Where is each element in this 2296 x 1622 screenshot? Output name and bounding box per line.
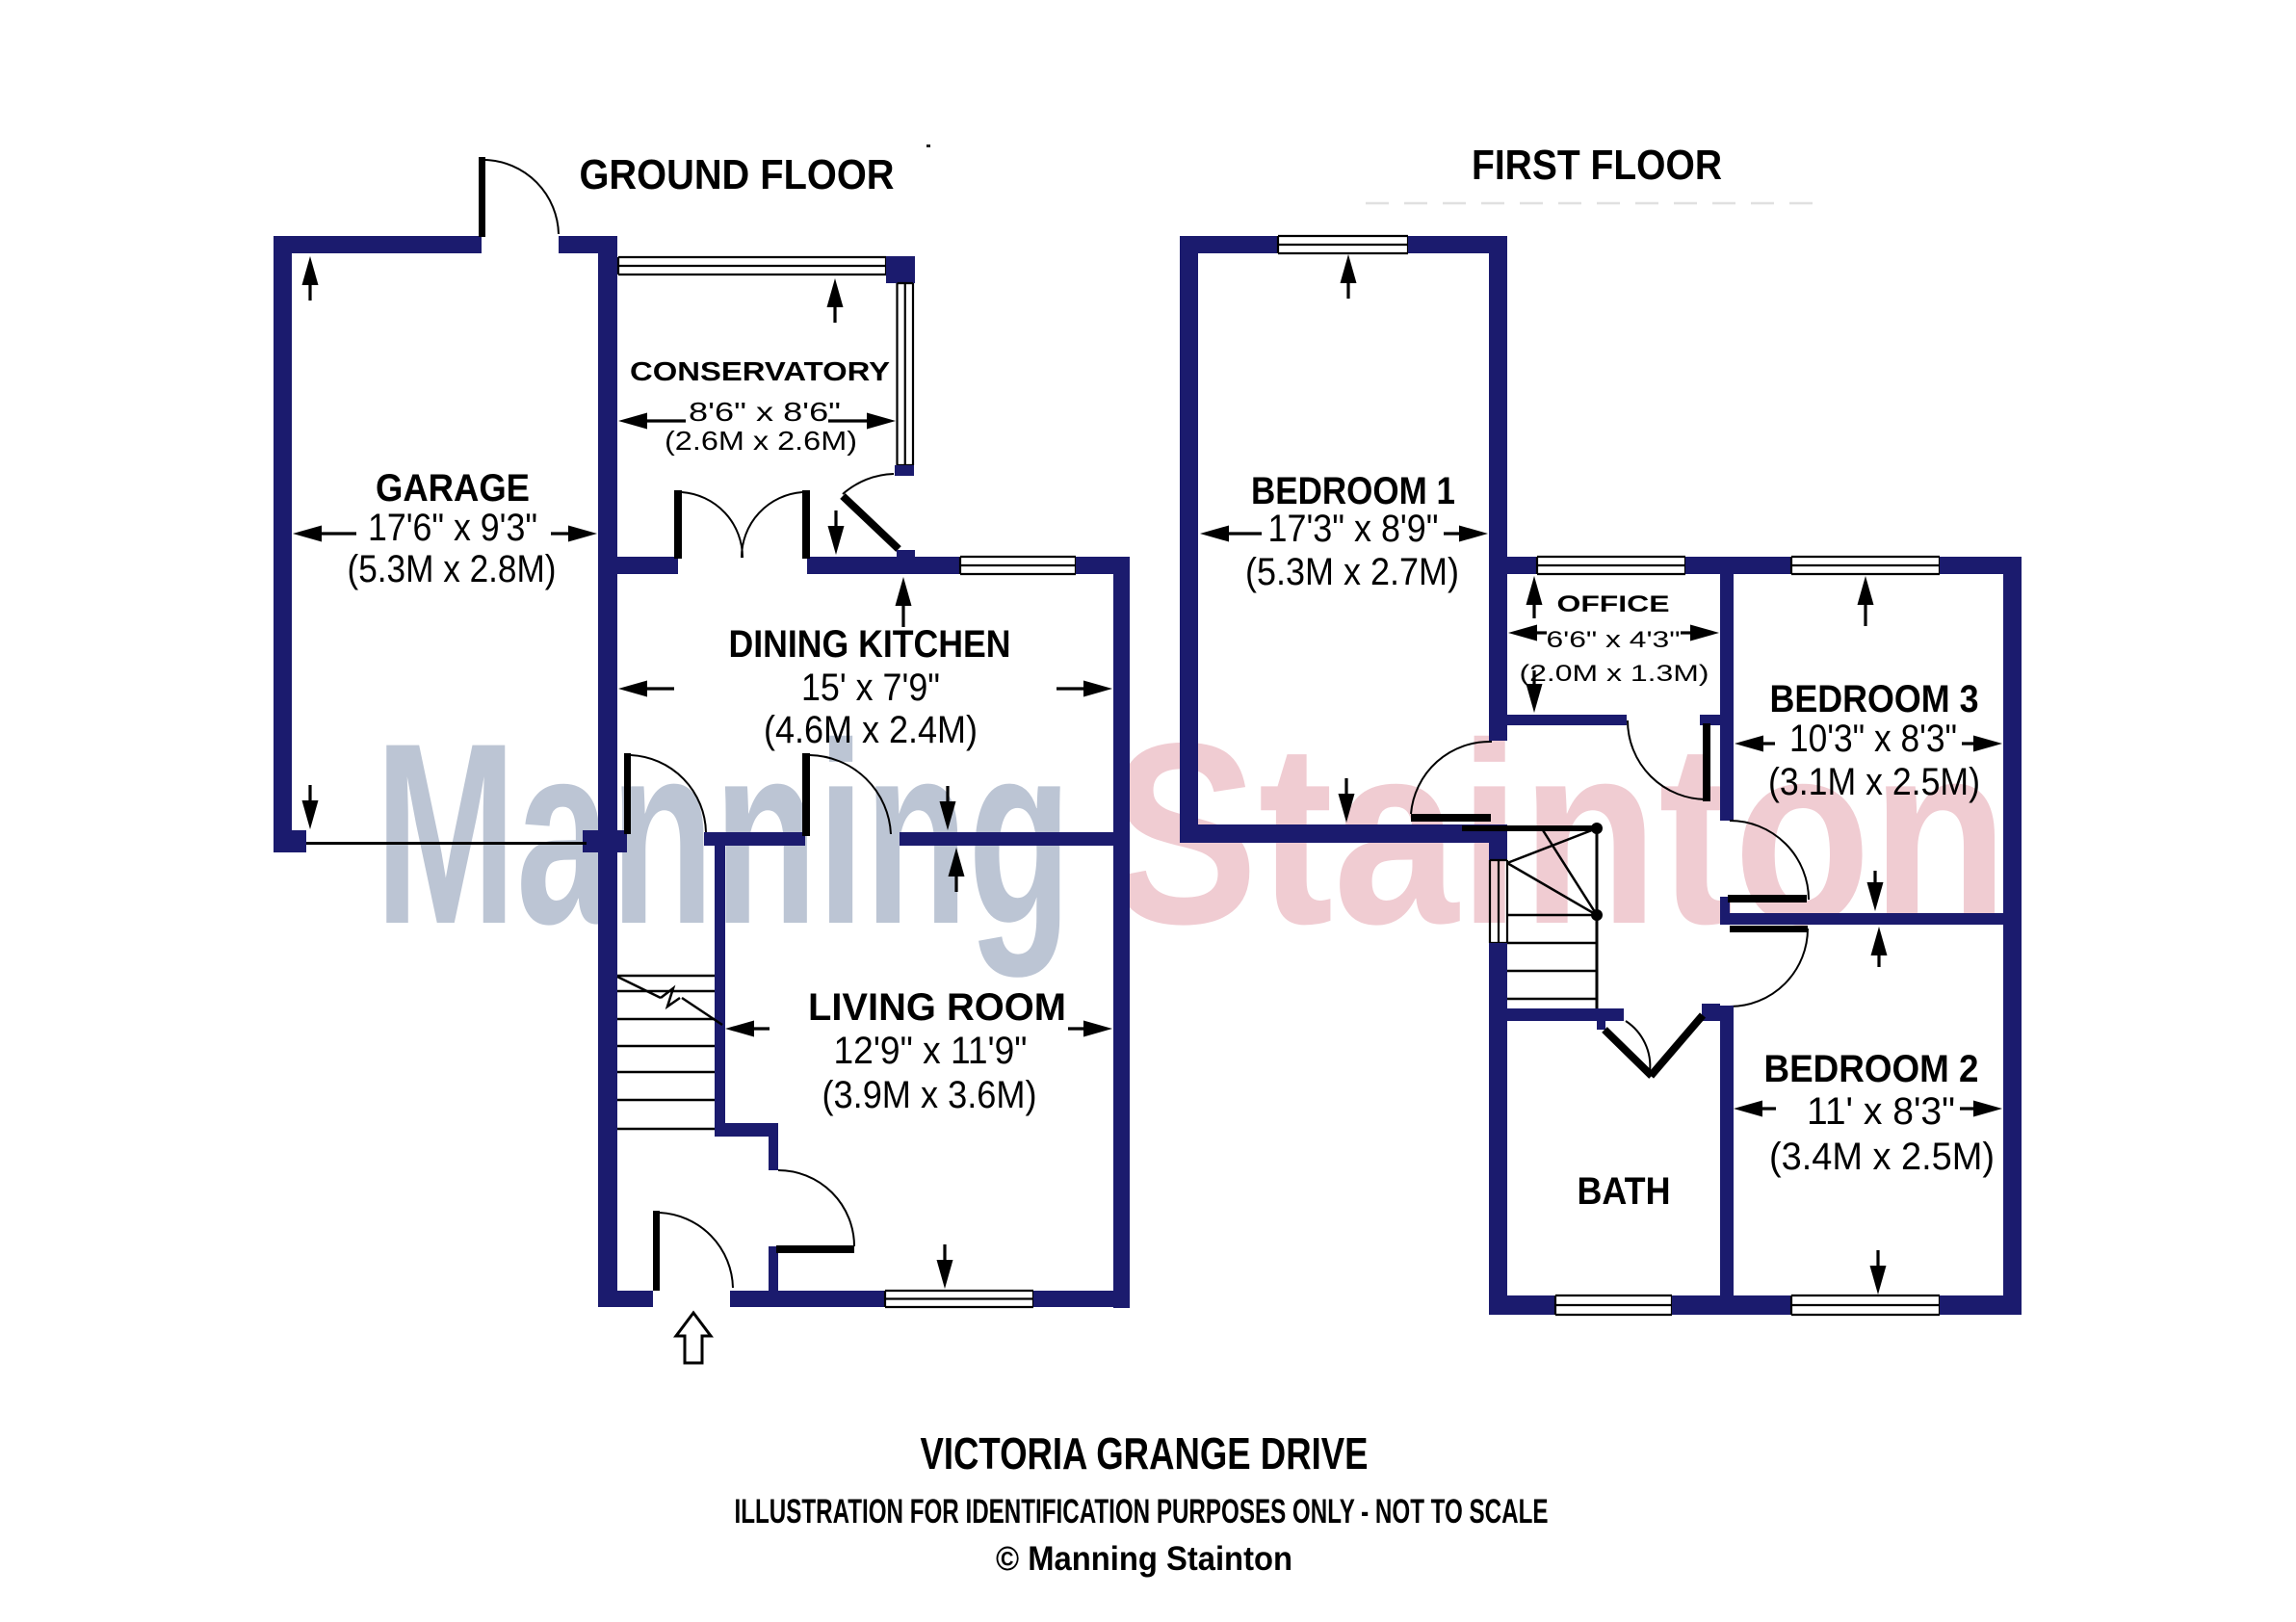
svg-text:CONSERVATORY: CONSERVATORY (630, 356, 890, 386)
svg-text:© Manning Stainton: © Manning Stainton (996, 1540, 1292, 1578)
svg-text:DINING KITCHEN: DINING KITCHEN (729, 623, 1011, 666)
svg-text:BEDROOM 3: BEDROOM 3 (1770, 678, 1979, 720)
svg-text:8'6" x 8'6": 8'6" x 8'6" (689, 397, 841, 427)
svg-text:12'9" x 11'9": 12'9" x 11'9" (834, 1030, 1028, 1072)
svg-text:(4.6M x 2.4M): (4.6M x 2.4M) (764, 709, 978, 751)
svg-text:LIVING ROOM: LIVING ROOM (808, 986, 1066, 1029)
svg-text:11' x 8'3": 11' x 8'3" (1807, 1090, 1955, 1133)
svg-text:BEDROOM 1: BEDROOM 1 (1251, 470, 1455, 512)
svg-text:GARAGE: GARAGE (376, 467, 530, 510)
svg-text:BATH: BATH (1578, 1170, 1671, 1213)
svg-text:OFFICE: OFFICE (1557, 591, 1670, 617)
svg-text:(3.9M x 3.6M): (3.9M x 3.6M) (822, 1074, 1037, 1116)
svg-text:VICTORIA GRANGE DRIVE: VICTORIA GRANGE DRIVE (921, 1428, 1369, 1478)
svg-text:15' x 7'9": 15' x 7'9" (801, 667, 940, 709)
svg-text:FIRST FLOOR: FIRST FLOOR (1472, 142, 1722, 189)
svg-text:(3.1M x 2.5M): (3.1M x 2.5M) (1768, 761, 1980, 803)
svg-text:6'6" x 4'3": 6'6" x 4'3" (1547, 627, 1681, 653)
svg-text:10'3" x 8'3": 10'3" x 8'3" (1789, 718, 1957, 760)
svg-text:GROUND FLOOR: GROUND FLOOR (580, 151, 895, 198)
svg-text:17'6" x 9'3": 17'6" x 9'3" (368, 507, 537, 549)
svg-text:(2.6M x 2.6M): (2.6M x 2.6M) (665, 426, 857, 456)
svg-text:BEDROOM 2: BEDROOM 2 (1764, 1048, 1979, 1090)
svg-text:17'3" x 8'9": 17'3" x 8'9" (1268, 508, 1439, 550)
svg-text:(5.3M x 2.7M): (5.3M x 2.7M) (1245, 551, 1459, 593)
svg-text:ILLUSTRATION FOR IDENTIFICATIO: ILLUSTRATION FOR IDENTIFICATION PURPOSES… (735, 1493, 1549, 1530)
svg-text:(5.3M x 2.8M): (5.3M x 2.8M) (348, 548, 557, 590)
svg-text:(2.0M x 1.3M): (2.0M x 1.3M) (1520, 661, 1709, 687)
svg-text:(3.4M x 2.5M): (3.4M x 2.5M) (1769, 1136, 1995, 1178)
